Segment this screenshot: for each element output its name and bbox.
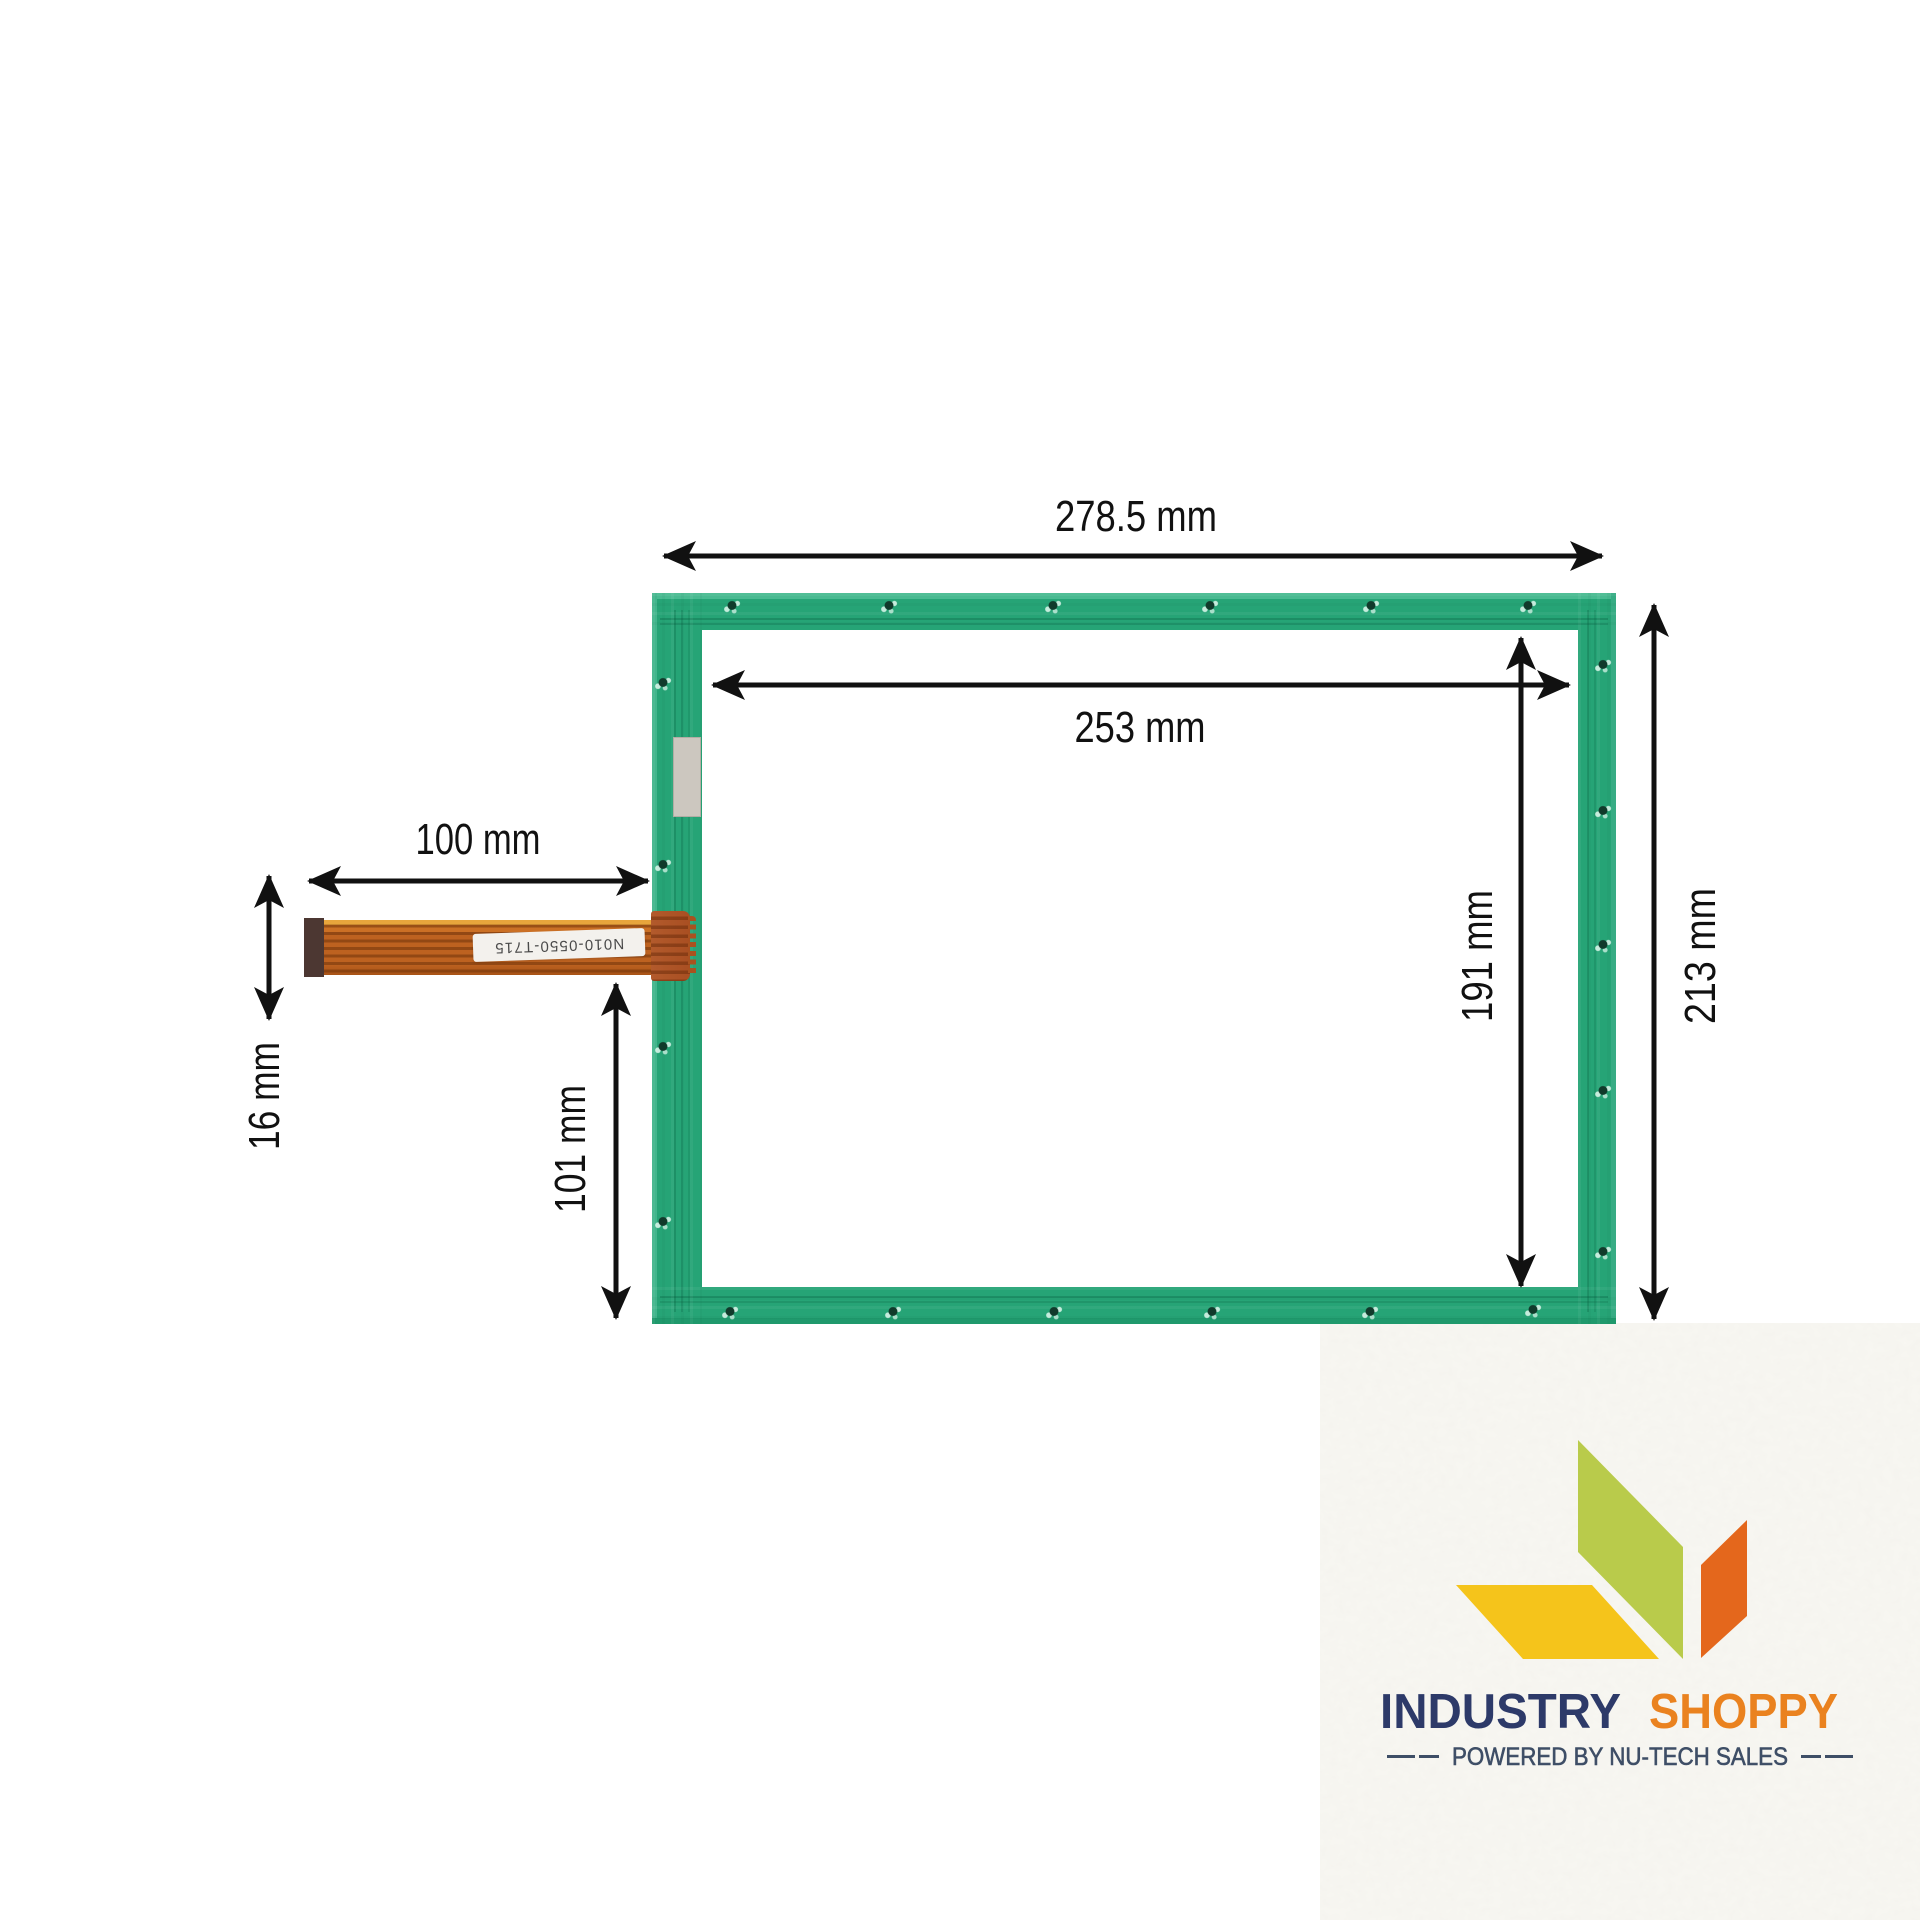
svg-text:253 mm: 253 mm <box>1075 703 1206 752</box>
svg-text:191 mm: 191 mm <box>1453 890 1502 1022</box>
svg-text:101 mm: 101 mm <box>546 1085 595 1213</box>
svg-text:278.5 mm: 278.5 mm <box>1055 492 1217 541</box>
svg-text:INDUSTRY: INDUSTRY <box>1380 1685 1621 1739</box>
svg-text:100 mm: 100 mm <box>416 815 541 864</box>
svg-text:16 mm: 16 mm <box>240 1042 289 1150</box>
svg-text:POWERED BY NU-TECH SALES: POWERED BY NU-TECH SALES <box>1452 1743 1788 1771</box>
svg-text:SHOPPY: SHOPPY <box>1649 1685 1838 1739</box>
svg-text:213 mm: 213 mm <box>1676 888 1725 1024</box>
